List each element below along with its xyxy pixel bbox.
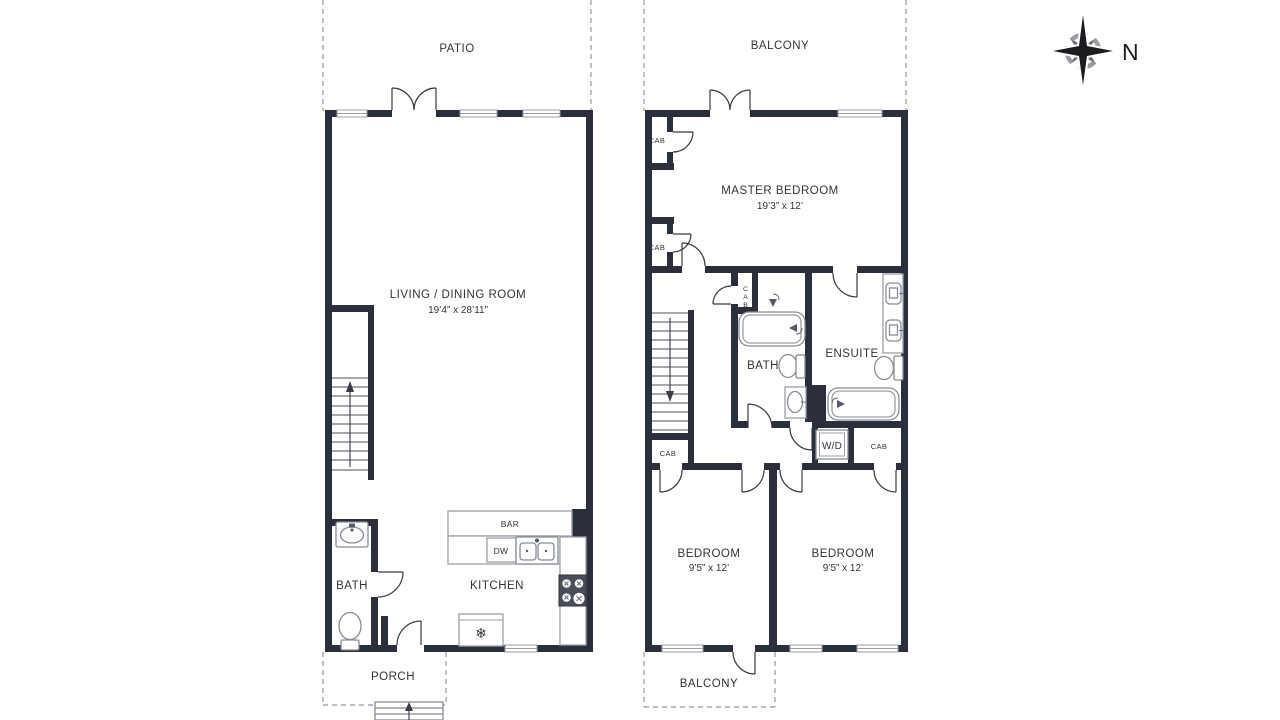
master-bedroom-dimensions: 19’3” x 12’	[757, 201, 803, 212]
bar-label: BAR	[501, 519, 519, 529]
closet-right-door	[874, 470, 896, 492]
closet-left-door	[660, 470, 682, 492]
living-dining-room: LIVING / DINING ROOM 19’4” x 28’11”	[390, 289, 527, 316]
bedroom-right-dimensions: 9’5” x 12’	[823, 563, 864, 574]
balcony-bottom-label: BALCONY	[680, 678, 738, 690]
balcony-bottom-door	[733, 652, 755, 674]
patio-label: PATIO	[439, 43, 474, 55]
washer-dryer-label: W/D	[822, 441, 842, 452]
window	[857, 645, 898, 652]
balcony-french-door	[710, 90, 750, 110]
cab-hall-right-label: CAB	[871, 442, 888, 451]
cab-hall-left-label: CAB	[660, 449, 677, 458]
ensuite: ENSUITE	[825, 274, 904, 420]
floor1-plan: PATIO	[323, 0, 593, 720]
patio-dashed-outline	[323, 0, 591, 111]
floor2-doors	[660, 90, 896, 674]
balcony-top-area: BALCONY	[644, 0, 906, 111]
floor1-walls	[325, 110, 593, 652]
staircase-floor1	[332, 378, 368, 470]
stove-icon	[559, 575, 586, 606]
stairs-down-arrow-icon	[666, 391, 674, 402]
floor1-doors	[378, 88, 436, 645]
cab-tall-letter: C	[743, 286, 748, 293]
cab-tall-letter: B	[743, 302, 748, 309]
porch-entry-door	[397, 621, 421, 645]
porch-steps	[375, 702, 443, 720]
ensuite-label: ENSUITE	[825, 348, 878, 360]
snowflake-icon: ❄	[475, 625, 487, 641]
bath2-door	[748, 404, 772, 428]
fridge-icon: ❄	[459, 614, 503, 646]
cab-tall-closet: C A B	[743, 286, 748, 309]
bedroom-left: BEDROOM 9’5” x 12’	[678, 548, 741, 574]
bath2-label: BATH	[747, 360, 779, 372]
kitchen-sink-icon	[516, 537, 558, 564]
sink-icon	[785, 387, 806, 418]
compass-rose-icon: N	[1053, 15, 1139, 85]
toilet-icon	[779, 355, 805, 379]
staircase-floor2	[652, 313, 688, 430]
patio-french-door	[392, 88, 436, 110]
compass-north-label: N	[1122, 39, 1139, 65]
window	[337, 110, 367, 117]
bedroom-right-label: BEDROOM	[812, 548, 875, 560]
window	[838, 110, 882, 117]
floorplan-page: PATIO	[0, 0, 1280, 720]
kitchen-label: KITCHEN	[470, 580, 524, 592]
bath1-door	[378, 572, 403, 597]
bath1-label: BATH	[336, 580, 368, 592]
toilet-icon	[875, 356, 904, 380]
window	[790, 645, 822, 652]
shower-head-icon	[769, 294, 779, 307]
patio-area: PATIO	[323, 0, 591, 111]
bedroom-right-door	[780, 470, 802, 492]
porch-label: PORCH	[371, 671, 415, 683]
living-room-dimensions: 19’4” x 28’11”	[428, 305, 488, 316]
living-room-label: LIVING / DINING ROOM	[390, 289, 527, 301]
double-vanity	[883, 274, 904, 353]
bedroom-left-dimensions: 9’5” x 12’	[689, 563, 730, 574]
porch-area: PORCH	[323, 652, 446, 720]
cab-tall-door	[713, 286, 731, 304]
window	[523, 110, 560, 117]
kitchen-area: ❄ BAR DW KITCHEN	[448, 511, 586, 646]
bedroom-left-label: BEDROOM	[678, 548, 741, 560]
balcony-top-label: BALCONY	[751, 40, 809, 52]
floor2-plan: BALCONY	[644, 0, 908, 707]
toilet-icon	[339, 613, 361, 651]
washer-dryer-door	[790, 428, 812, 450]
window	[662, 645, 703, 652]
dishwasher-label: DW	[494, 546, 509, 556]
balcony-top-dashed-outline	[644, 0, 906, 111]
sink-icon	[336, 522, 368, 547]
cab-tall-letter: A	[743, 294, 748, 301]
window	[460, 110, 497, 117]
cab-closet-mid-label: CAB	[649, 243, 666, 252]
ensuite-door	[833, 273, 857, 297]
cab-closet-top-door	[673, 132, 693, 152]
bath-floor1: BATH	[336, 522, 368, 650]
cab-closet-top-label: CAB	[649, 136, 666, 145]
bath-floor2: BATH	[739, 294, 806, 418]
master-bedroom-label: MASTER BEDROOM	[721, 185, 839, 197]
bedroom-right: BEDROOM 9’5” x 12’	[812, 548, 875, 574]
window	[505, 645, 537, 652]
bedroom-left-door	[742, 470, 764, 492]
